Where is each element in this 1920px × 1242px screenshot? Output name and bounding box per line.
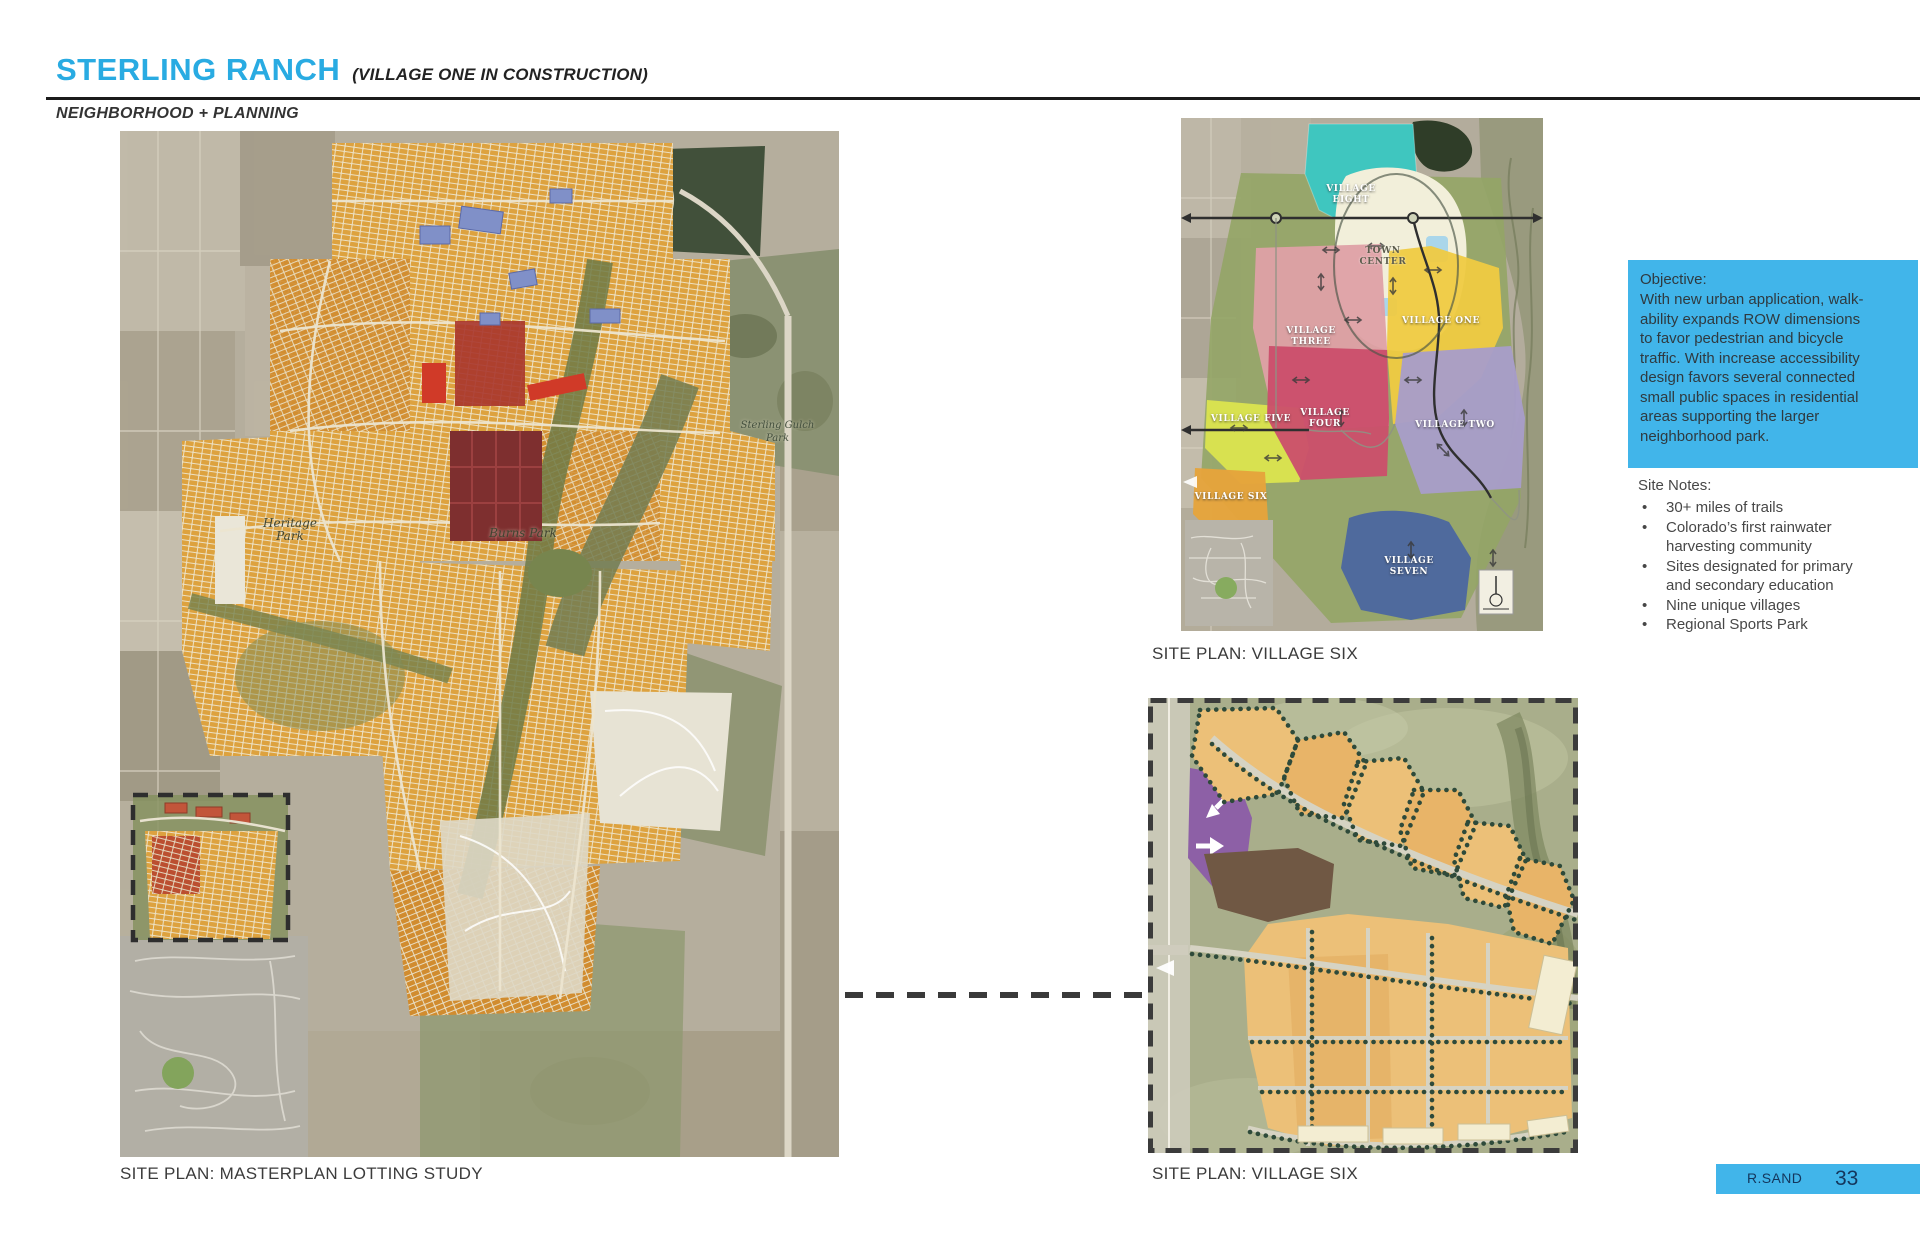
objective-heading: Objective: — [1640, 270, 1906, 290]
site-notes: Site Notes: 30+ miles of trails Colorado… — [1638, 476, 1920, 635]
page-header: STERLING RANCH (VILLAGE ONE IN CONSTRUCT… — [56, 52, 648, 88]
village-two-region — [1395, 346, 1525, 494]
site-note-item: Sites designated for primary and seconda… — [1638, 557, 1881, 596]
detail-plan-caption: SITE PLAN: VILLAGE SIX — [1152, 1164, 1358, 1184]
header-rule — [46, 97, 1920, 100]
site-note-item: Nine unique villages — [1638, 596, 1881, 616]
masterplan-map: Heritage Park Burns Park Sterling Gulch … — [120, 131, 839, 1157]
objective-body: With new urban application, walk-ability… — [1640, 290, 1872, 446]
footer-page-number: 33 — [1835, 1167, 1858, 1191]
footer-page-bar: R.SAND 33 — [1716, 1164, 1920, 1194]
site-notes-heading: Site Notes: — [1638, 476, 1920, 496]
site-notes-list: 30+ miles of trails Colorado’s first rai… — [1638, 498, 1920, 635]
masterplan-map-graphic — [120, 131, 839, 1157]
site-note-item: Colorado’s first rainwater harvesting co… — [1638, 518, 1881, 557]
village-key-map: VILLAGE EIGHT TOWN CENTER VILLAGE THREE … — [1181, 118, 1543, 631]
portfolio-page: STERLING RANCH (VILLAGE ONE IN CONSTRUCT… — [0, 0, 1920, 1242]
north-compass-icon — [1479, 570, 1513, 614]
village-six-study-area — [133, 795, 288, 940]
category-label: NEIGHBORHOOD + PLANNING — [56, 105, 299, 123]
village-map-caption: SITE PLAN: VILLAGE SIX — [1152, 644, 1358, 664]
page-title: STERLING RANCH — [56, 52, 340, 88]
village-seven-region — [1341, 511, 1471, 620]
site-note-item: 30+ miles of trails — [1638, 498, 1881, 518]
callout-connector-line — [845, 992, 1147, 998]
footer-author: R.SAND — [1747, 1170, 1802, 1186]
masterplan-caption: SITE PLAN: MASTERPLAN LOTTING STUDY — [120, 1164, 483, 1184]
village-six-detail-graphic — [1148, 698, 1578, 1153]
village-six-detail-plan — [1148, 698, 1578, 1153]
site-note-item: Regional Sports Park — [1638, 615, 1881, 635]
objective-box: Objective: With new urban application, w… — [1628, 260, 1918, 468]
page-subtitle: (VILLAGE ONE IN CONSTRUCTION) — [352, 65, 648, 85]
village-key-map-graphic — [1181, 118, 1543, 631]
